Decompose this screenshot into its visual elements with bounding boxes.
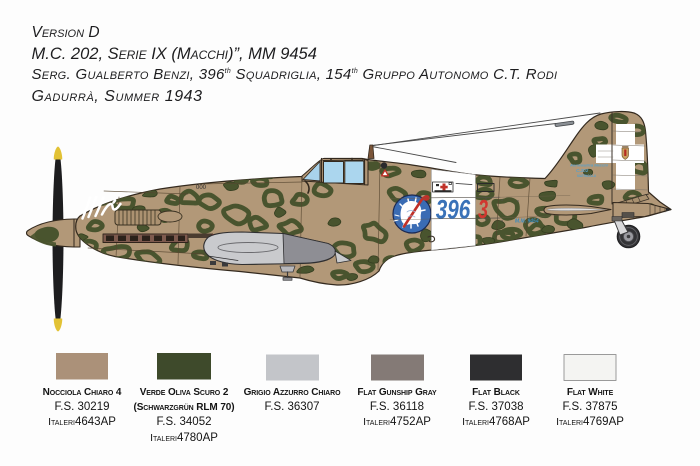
svg-text:396: 396 [436, 195, 471, 225]
svg-text:000: 000 [196, 185, 207, 191]
svg-text:Aeronautica Macchi: Aeronautica Macchi [569, 163, 609, 168]
svg-text:MATRICOLA: MATRICOLA [577, 174, 597, 178]
svg-text:M.M. 9454: M.M. 9454 [515, 219, 539, 225]
svg-text:3: 3 [478, 194, 488, 224]
svg-text:C.202: C.202 [576, 168, 589, 173]
